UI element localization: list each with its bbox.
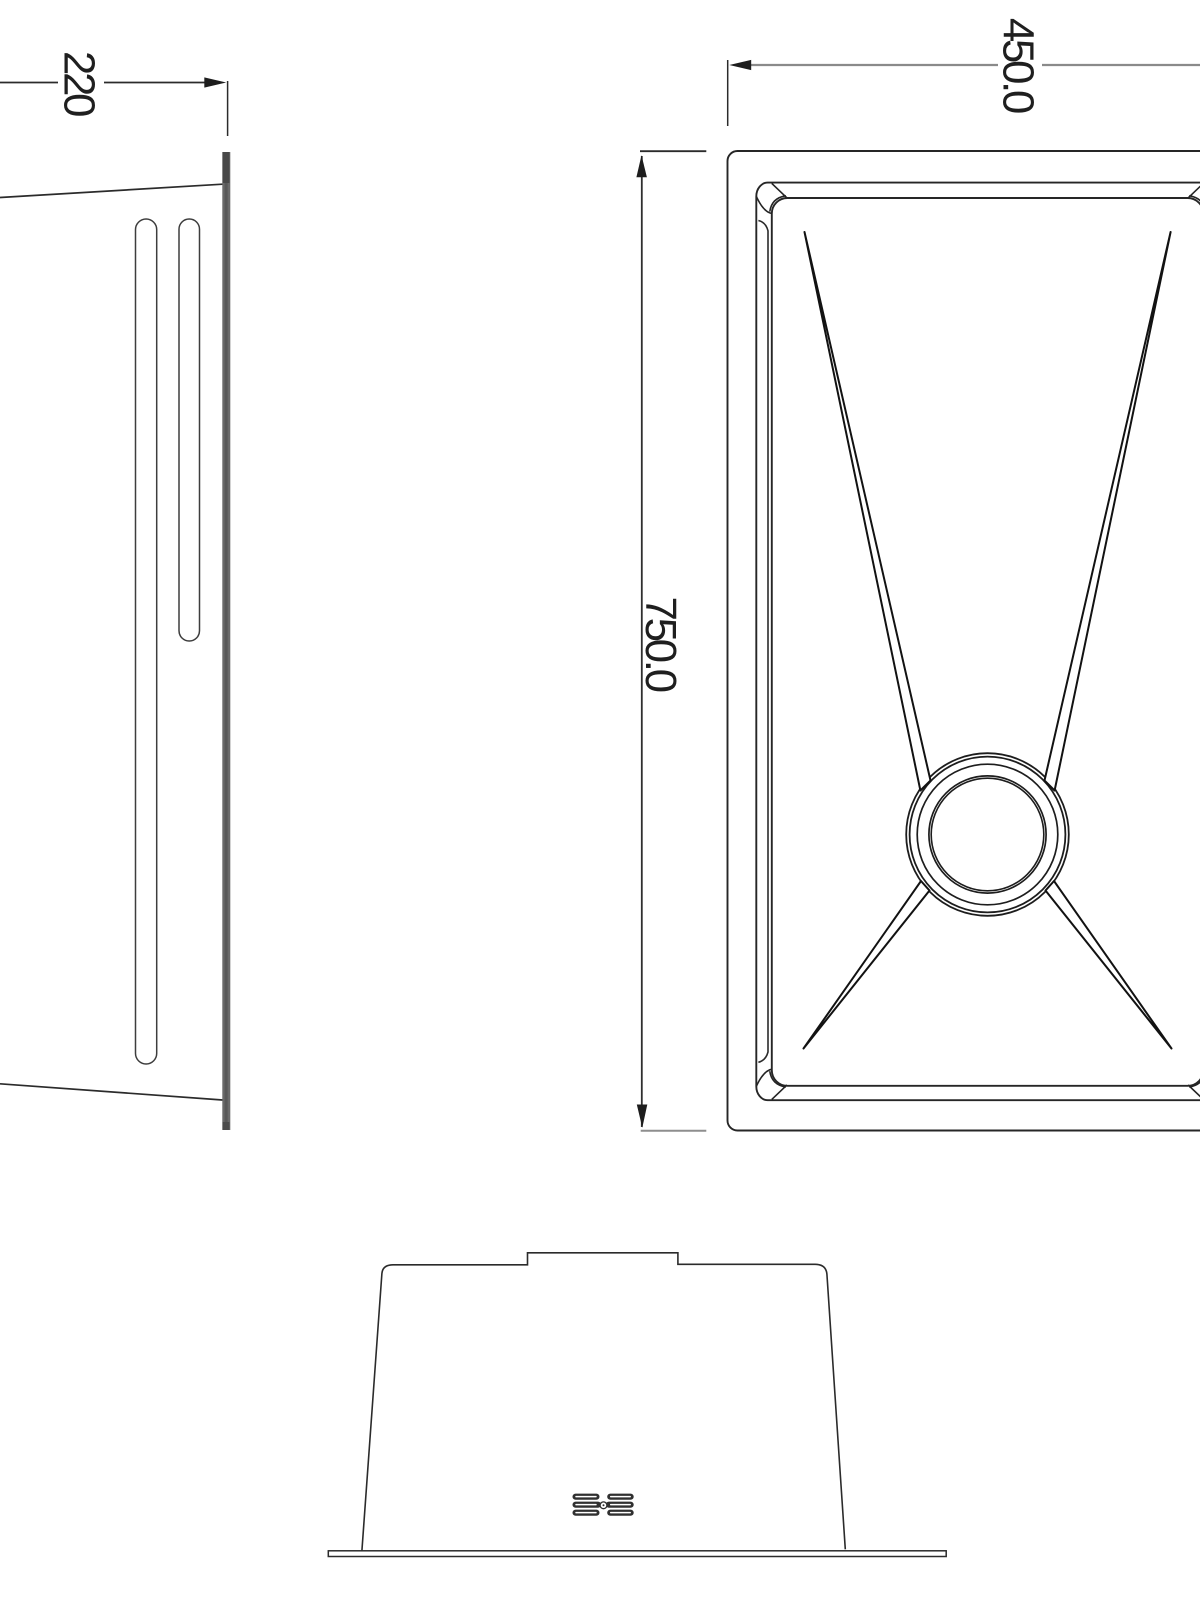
- svg-text:220: 220: [55, 51, 104, 116]
- svg-text:750.0: 750.0: [636, 597, 685, 692]
- svg-text:450.0: 450.0: [993, 18, 1042, 113]
